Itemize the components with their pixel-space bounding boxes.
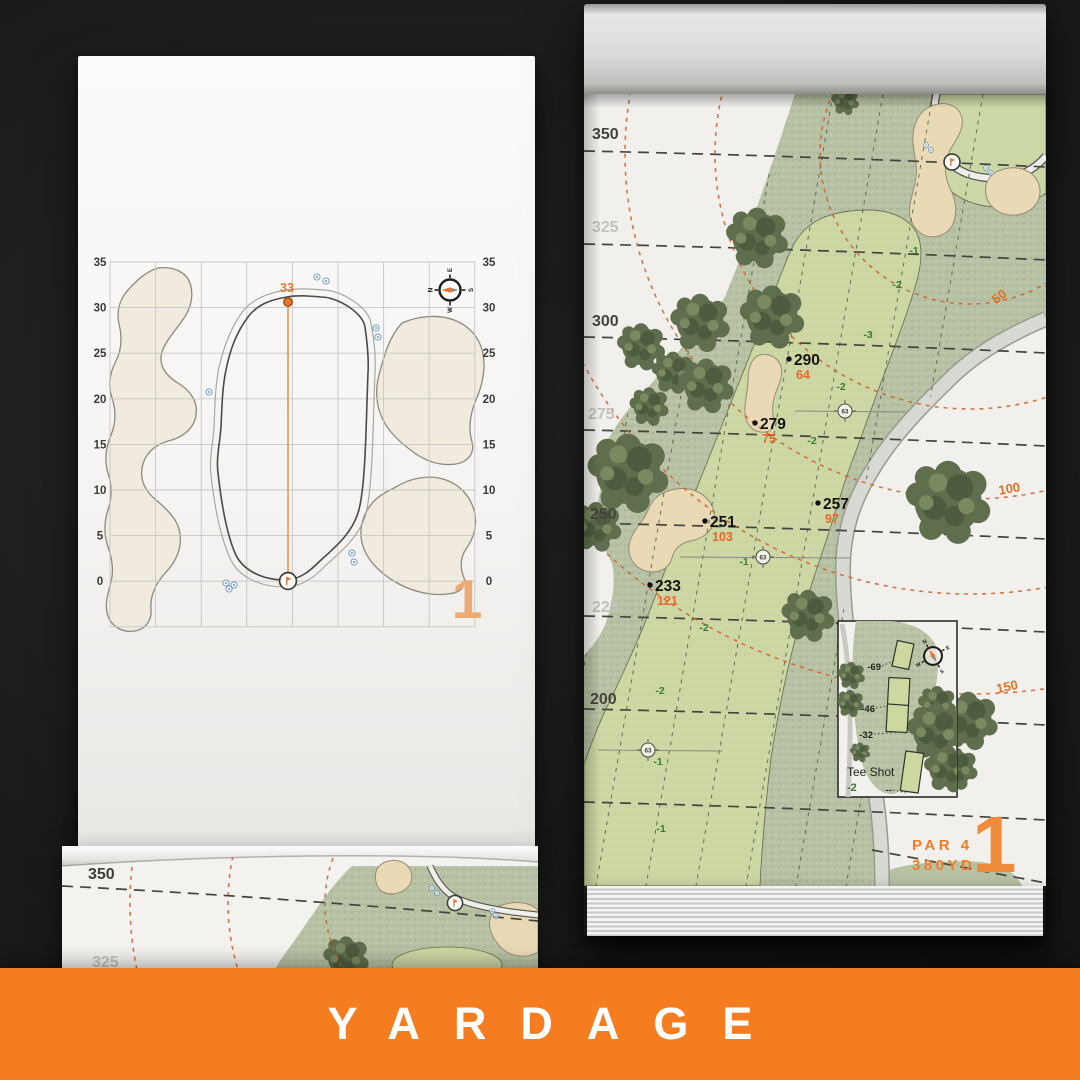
svg-text:15: 15 bbox=[94, 439, 107, 451]
svg-text:0: 0 bbox=[486, 576, 492, 588]
svg-text:30: 30 bbox=[94, 303, 107, 315]
svg-text:63: 63 bbox=[645, 747, 652, 754]
svg-text:-1: -1 bbox=[739, 556, 748, 568]
banner-title: YARDAGE bbox=[294, 998, 787, 1050]
svg-text:64: 64 bbox=[796, 368, 810, 382]
next-page-partial: 350 325 bbox=[62, 846, 538, 968]
hole-map-page: 63 63 63 350 325 300 275 250 225 200 bbox=[584, 4, 1046, 936]
svg-text:-1: -1 bbox=[656, 823, 665, 835]
svg-text:10: 10 bbox=[483, 485, 496, 497]
svg-text:5: 5 bbox=[97, 531, 104, 543]
hole-map: 63 63 63 350 325 300 275 250 225 200 bbox=[584, 94, 1046, 886]
svg-text:25: 25 bbox=[94, 348, 107, 360]
svg-text:97: 97 bbox=[825, 512, 839, 526]
green-detail-map: 33 3535 3030 2525 2020 1515 1010 55 bbox=[78, 56, 535, 848]
svg-text:-1: -1 bbox=[653, 756, 662, 768]
curl-shadow bbox=[584, 94, 1046, 108]
svg-text:5: 5 bbox=[486, 531, 493, 543]
svg-text:325: 325 bbox=[92, 954, 119, 968]
svg-text:35: 35 bbox=[483, 257, 496, 269]
svg-text:75: 75 bbox=[762, 432, 776, 446]
svg-text:290: 290 bbox=[794, 352, 820, 369]
tee-elevation: -2 bbox=[847, 782, 857, 794]
svg-text:350: 350 bbox=[88, 866, 115, 883]
svg-text:257: 257 bbox=[823, 496, 849, 513]
svg-text:25: 25 bbox=[483, 348, 496, 360]
green-detail-page: 33 3535 3030 2525 2020 1515 1010 55 bbox=[78, 56, 535, 848]
svg-text:63: 63 bbox=[760, 554, 767, 561]
svg-text:10: 10 bbox=[94, 485, 107, 497]
tee-shot-title: Tee Shot bbox=[847, 765, 895, 779]
yardage-label: 380YD bbox=[912, 857, 975, 874]
svg-text:-3: -3 bbox=[863, 329, 872, 341]
svg-text:30: 30 bbox=[483, 303, 496, 315]
svg-text:0: 0 bbox=[97, 576, 103, 588]
next-hole-map-partial: 350 325 bbox=[62, 846, 538, 968]
svg-text:-2: -2 bbox=[836, 381, 845, 393]
svg-text:-32: -32 bbox=[859, 730, 873, 741]
svg-text:-1: -1 bbox=[909, 245, 918, 257]
svg-text:121: 121 bbox=[657, 594, 678, 608]
svg-text:-2: -2 bbox=[807, 435, 816, 447]
svg-text:251: 251 bbox=[710, 514, 736, 531]
pin-measure-line bbox=[284, 298, 292, 580]
svg-text:-69: -69 bbox=[867, 662, 881, 673]
page-curl bbox=[584, 4, 1046, 94]
svg-text:20: 20 bbox=[483, 394, 496, 406]
yardage-banner: YARDAGE bbox=[0, 968, 1080, 1080]
svg-text:-2: -2 bbox=[699, 622, 708, 634]
svg-text:15: 15 bbox=[483, 439, 496, 451]
svg-text:-2: -2 bbox=[892, 279, 901, 291]
svg-text:63: 63 bbox=[842, 408, 849, 415]
svg-text:233: 233 bbox=[655, 578, 681, 595]
green-outline bbox=[210, 289, 375, 587]
svg-text:20: 20 bbox=[94, 394, 107, 406]
page-stack-edges bbox=[587, 886, 1043, 936]
hole-number: 1 bbox=[452, 568, 483, 630]
pin-distance-label: 33 bbox=[280, 281, 294, 295]
measure-dot bbox=[284, 298, 292, 306]
svg-text:35: 35 bbox=[94, 257, 107, 269]
yardage-book-mockup: N E S W bbox=[0, 0, 1080, 1080]
hole-number: 1 bbox=[972, 800, 1017, 886]
svg-text:--: -- bbox=[886, 785, 892, 796]
tee-shot-inset: -69 -46 -32 -- Tee Shot -2 bbox=[836, 620, 972, 797]
binding-shadow bbox=[584, 94, 600, 886]
svg-text:-2: -2 bbox=[655, 685, 664, 697]
par-label: PAR 4 bbox=[912, 837, 973, 854]
svg-text:103: 103 bbox=[712, 530, 733, 544]
svg-text:-46: -46 bbox=[861, 704, 875, 715]
svg-text:279: 279 bbox=[760, 416, 786, 433]
